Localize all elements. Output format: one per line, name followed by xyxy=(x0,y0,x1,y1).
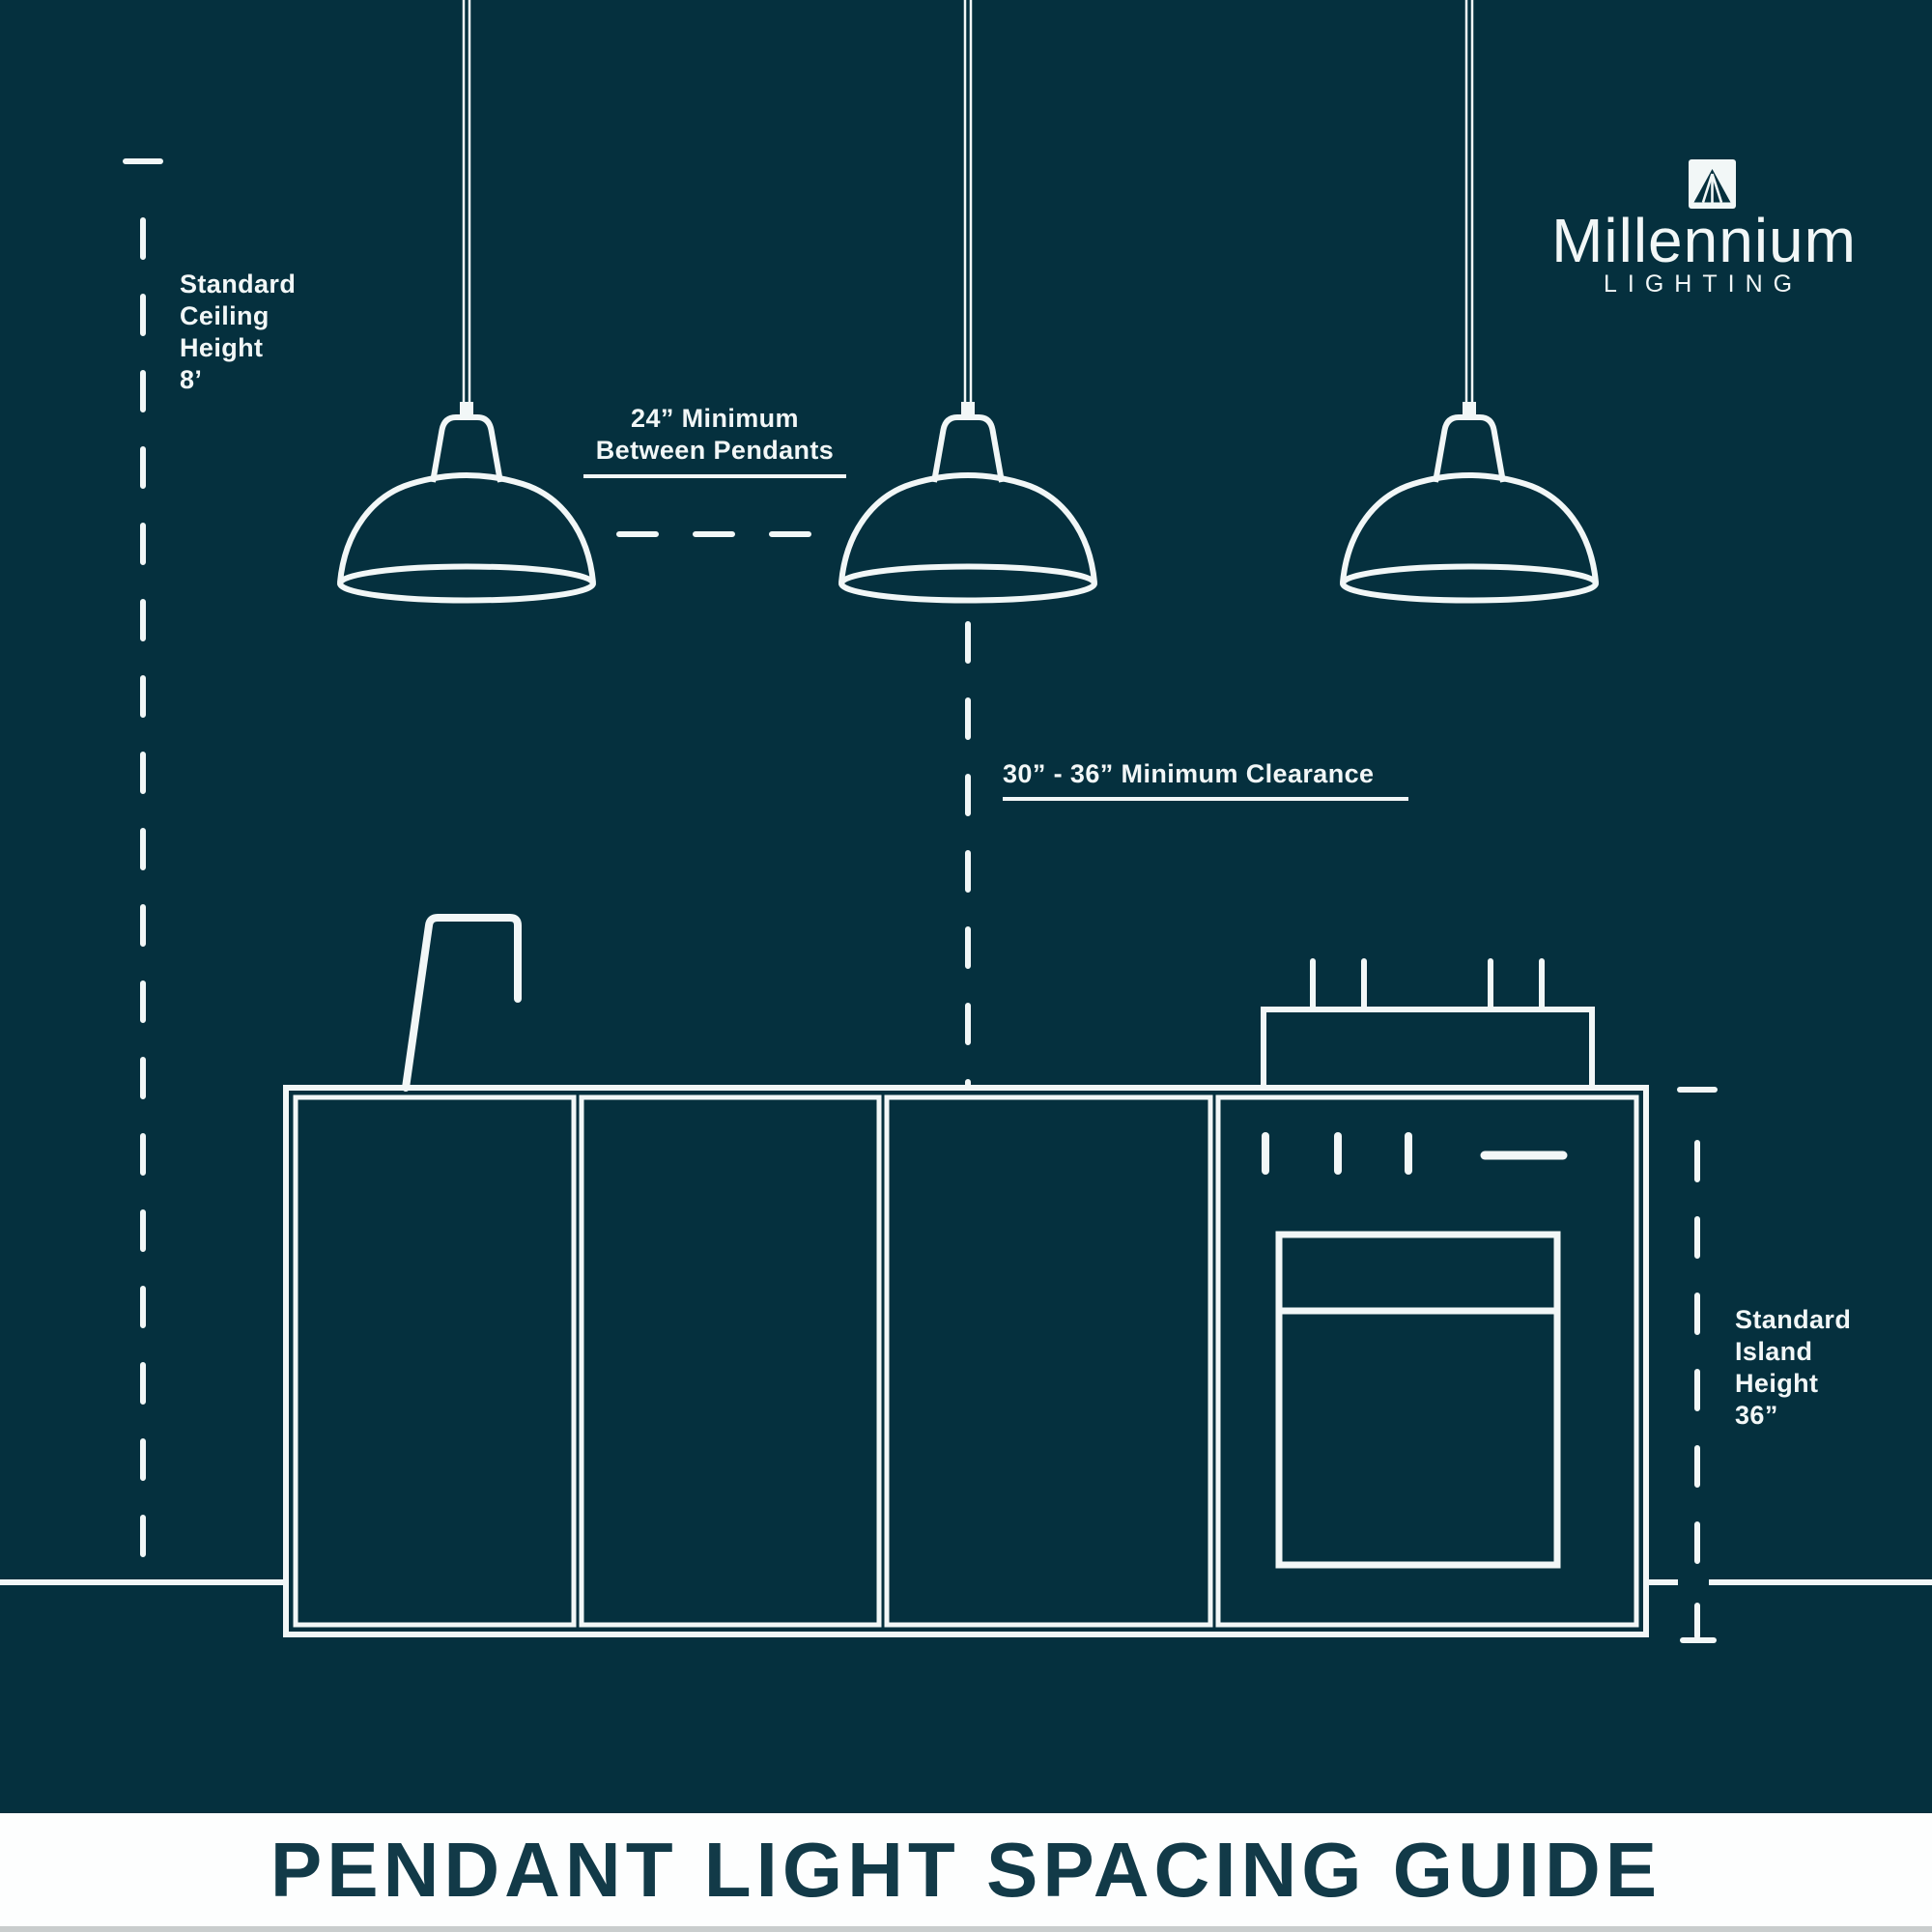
pendant-light-right xyxy=(1343,0,1596,601)
label-line: Height xyxy=(180,332,296,364)
ceiling-height-label: Standard Ceiling Height 8’ xyxy=(180,269,296,396)
label-line: Height xyxy=(1735,1368,1851,1400)
millennium-logo-icon xyxy=(1689,159,1736,209)
label-line: Ceiling xyxy=(180,300,296,332)
pendant-neck xyxy=(1435,417,1503,482)
island-cabinet-door xyxy=(887,1097,1210,1625)
island-counter-outline xyxy=(286,1088,1646,1634)
logo-subtitle: LIGHTING xyxy=(1604,270,1803,298)
label-line: 8’ xyxy=(180,364,296,396)
island-cabinet-door xyxy=(582,1097,879,1625)
pendant-spacing-label: 24” Minimum Between Pendants xyxy=(522,403,908,467)
pendant-light-left xyxy=(340,0,593,601)
stove xyxy=(1264,961,1592,1565)
island-cabinet-door xyxy=(296,1097,574,1625)
kitchen-island xyxy=(286,1088,1646,1634)
label-line: Island xyxy=(1735,1336,1851,1368)
label-line: Between Pendants xyxy=(522,435,908,467)
ceiling-height-measure xyxy=(126,161,160,1582)
label-line: Standard xyxy=(1735,1304,1851,1336)
title-banner: PENDANT LIGHT SPACING GUIDE xyxy=(0,1813,1932,1926)
label-line: 30” - 36” Minimum Clearance xyxy=(1003,758,1374,790)
stove-back-panel xyxy=(1264,1009,1592,1088)
pendant-spacing-underline xyxy=(583,474,846,478)
label-line: 36” xyxy=(1735,1400,1851,1432)
pendant-rim xyxy=(1343,567,1596,601)
clearance-label: 30” - 36” Minimum Clearance xyxy=(1003,758,1374,790)
faucet-icon xyxy=(406,918,518,1088)
pendant-rim xyxy=(340,567,593,601)
label-line: Standard xyxy=(180,269,296,300)
island-height-measure xyxy=(1680,1090,1715,1640)
pendant-rim xyxy=(841,567,1094,601)
oven-door xyxy=(1279,1235,1557,1565)
pendant-light-center xyxy=(841,0,1094,601)
logo-wordmark: Millennium xyxy=(1540,205,1868,276)
pendant-neck xyxy=(934,417,1002,482)
island-height-label: Standard Island Height 36” xyxy=(1735,1304,1851,1432)
pendant-neck xyxy=(433,417,500,482)
label-line: 24” Minimum xyxy=(522,403,908,435)
page-title: PENDANT LIGHT SPACING GUIDE xyxy=(270,1826,1662,1915)
clearance-underline xyxy=(1003,797,1408,801)
footer-strip xyxy=(0,1926,1932,1932)
